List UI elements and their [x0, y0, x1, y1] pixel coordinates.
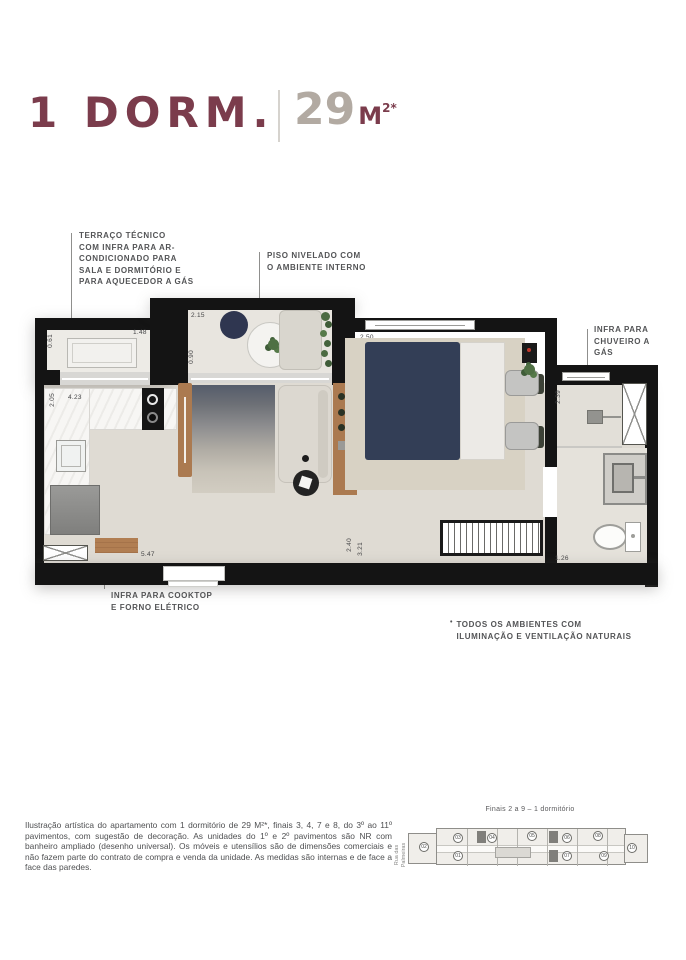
speaker-led — [527, 348, 531, 352]
shaft-hatch-bath — [622, 383, 647, 445]
keyplan-corridor — [437, 845, 627, 853]
keyplan-stair-core — [549, 831, 558, 843]
terrace-note: TERRAÇO TÉCNICO COM INFRA PARA AR- CONDI… — [79, 230, 194, 288]
ac-unit-inner — [72, 343, 132, 363]
dim-balcony-depth: 0.90 — [188, 350, 195, 364]
wall-balcony-left — [150, 298, 188, 385]
vanity — [603, 453, 647, 505]
bed-blanket — [365, 342, 460, 460]
ac-unit — [67, 338, 137, 368]
kitchen-sink — [56, 440, 86, 472]
floor-plan: 0.61 1.48 2.15 0.90 2.50 2.05 4.23 5.47 — [35, 298, 658, 590]
keyplan-stair-core — [477, 831, 486, 843]
features-note-line: ILUMINAÇÃO E VENTILAÇÃO NATURAIS — [456, 631, 631, 643]
disclaimer-text: Ilustração artística do apartamento com … — [25, 820, 392, 873]
dim-bath-depth: 2.39 — [555, 390, 562, 404]
keyplan-divider — [577, 829, 578, 866]
keyplan-divider — [467, 829, 468, 866]
tv-knob — [338, 393, 345, 400]
vanity-basin — [612, 463, 634, 493]
keyplan-divider — [607, 829, 608, 866]
keyplan-unit-07: 07 — [562, 851, 572, 861]
sofa-backrest — [318, 390, 328, 478]
piso-note: PISO NIVELADO COM O AMBIENTE INTERNO — [267, 250, 366, 273]
features-note: • TODOS OS AMBIENTES COM ILUMINAÇÃO E VE… — [450, 619, 632, 642]
tv-knob — [338, 409, 345, 416]
cooktop-note: INFRA PARA COOKTOP E FORNO ELÉTRICO — [111, 590, 212, 613]
floor-lamp-dot — [302, 455, 309, 462]
terrace-note-line: SALA E DORMITÓRIO E — [79, 265, 194, 277]
area-superscript: 2* — [382, 102, 397, 114]
speaker — [522, 343, 537, 363]
keyplan-unit-09: 09 — [599, 851, 609, 861]
page-title: 1 DORM. — [28, 88, 275, 137]
bullet-marker: • — [450, 619, 452, 642]
pillow — [505, 422, 539, 450]
keyplan-unit-02: 02 — [419, 842, 429, 852]
keyplan-street-label: Rua das Palmeiras — [394, 827, 408, 883]
keyplan-unit-04: 04 — [487, 833, 497, 843]
dim-hall-length: 3.21 — [357, 542, 364, 556]
shower-head-icon — [587, 410, 603, 424]
washer — [50, 485, 100, 535]
dim-living-length: 5.47 — [141, 551, 155, 558]
keyplan-unit-01: 01 — [453, 851, 463, 861]
pillow — [505, 370, 539, 396]
keyplan-unit-05: 05 — [527, 831, 537, 841]
wood-mat — [95, 538, 138, 553]
cooktop — [142, 388, 164, 430]
dim-bath-width: 1.26 — [555, 555, 569, 562]
keyplan-unit-08: 08 — [593, 831, 603, 841]
dim-balcony-width: 2.15 — [191, 312, 205, 319]
bedroom-window — [365, 320, 475, 330]
bedside-plant — [524, 364, 535, 375]
shaft-hatch-kitchen — [43, 545, 88, 561]
table-plant — [268, 339, 279, 350]
dim-hall-depth: 2.40 — [346, 538, 353, 552]
keyplan-title: Finais 2 a 9 – 1 dormitório — [385, 806, 675, 813]
bed-sheet — [460, 342, 505, 460]
piso-note-line: PISO NIVELADO COM — [267, 250, 366, 262]
piso-note-line: O AMBIENTE INTERNO — [267, 262, 366, 274]
balcony-sliding-door — [188, 373, 332, 383]
pouf — [220, 311, 248, 339]
balcony-plants — [321, 312, 330, 321]
entry-step — [168, 581, 218, 587]
terrace-sliding-door — [60, 372, 150, 385]
street-line: Palmeiras — [401, 827, 408, 883]
keyplan: Finais 2 a 9 – 1 dormitório Rua das Palm… — [385, 800, 675, 900]
toilet-bowl — [593, 524, 627, 550]
wardrobe — [440, 520, 543, 556]
keyplan-unit-03: 03 — [453, 833, 463, 843]
rug — [192, 385, 275, 493]
area-unit: M — [358, 104, 382, 128]
cooktop-note-line: INFRA PARA COOKTOP — [111, 590, 212, 602]
keyplan-unit-10: 10 — [627, 843, 637, 853]
sink-basin — [61, 445, 81, 467]
sofa — [278, 385, 332, 483]
sideboard-handle — [184, 397, 186, 463]
wall-kitchen-left — [35, 383, 44, 563]
terrace-note-line: COM INFRA PARA AR- — [79, 242, 194, 254]
keyplan-divider — [547, 829, 548, 866]
side-table — [293, 470, 319, 496]
area-value: 29 — [294, 88, 355, 132]
street-line: Rua das — [394, 827, 401, 883]
keyplan-stair-core — [549, 850, 558, 862]
area-label: 29 M 2* — [294, 88, 397, 132]
bath-window — [562, 372, 610, 381]
features-note-line: TODOS OS AMBIENTES COM — [456, 619, 631, 631]
dim-terrace-depth: 0.61 — [47, 334, 54, 348]
wall-bottom — [35, 563, 658, 585]
terrace-note-line: PARA AQUECEDOR A GÁS — [79, 276, 194, 288]
dim-kitchen-depth: 2.05 — [49, 393, 56, 407]
tv-knob — [338, 424, 345, 431]
burner-icon — [147, 412, 158, 423]
vanity-faucet — [634, 476, 646, 479]
toilet-button — [631, 534, 635, 538]
entry-door-recess — [163, 566, 225, 581]
shower-arm — [603, 416, 621, 418]
title-divider — [278, 90, 280, 142]
terrace-note-line: CONDICIONADO PARA — [79, 253, 194, 265]
dim-kitchen-width: 4.23 — [68, 394, 82, 401]
side-table-note — [299, 476, 313, 490]
burner-icon — [147, 394, 158, 405]
dim-terrace-width: 1.48 — [133, 329, 147, 336]
keyplan-elevator-core — [495, 847, 531, 858]
cooktop-note-line: E FORNO ELÉTRICO — [111, 602, 212, 614]
keyplan-unit-06: 06 — [562, 833, 572, 843]
toilet-tank — [625, 522, 641, 552]
bath-door-opening — [543, 467, 557, 517]
sideboard — [178, 383, 192, 477]
brochure-page: { "header": { "title": "1 DORM.", "area_… — [0, 0, 686, 960]
terrace-note-line: TERRAÇO TÉCNICO — [79, 230, 194, 242]
balcony-bench — [279, 310, 322, 370]
